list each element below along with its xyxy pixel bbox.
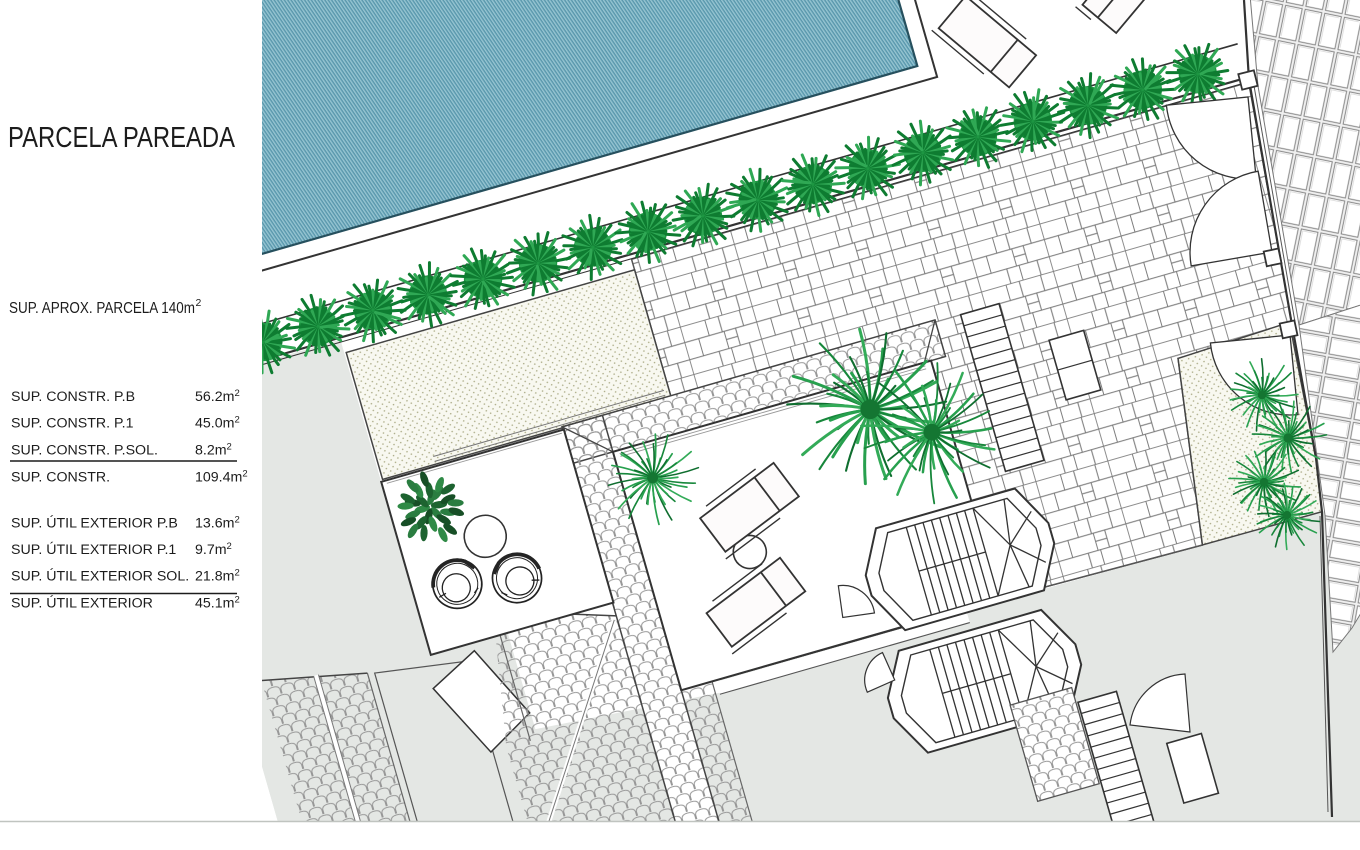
svg-text:SUP. ÚTIL EXTERIOR P.1: SUP. ÚTIL EXTERIOR P.1 (11, 541, 176, 558)
svg-text:2: 2 (196, 297, 202, 309)
svg-text:109.4m2: 109.4m2 (195, 469, 248, 486)
svg-text:SUP. CONSTR. P.1: SUP. CONSTR. P.1 (11, 416, 134, 432)
svg-text:SUP. CONSTR. P.SOL.: SUP. CONSTR. P.SOL. (11, 443, 158, 459)
svg-text:13.6m2: 13.6m2 (195, 515, 240, 532)
svg-text:SUP. ÚTIL EXTERIOR P.B: SUP. ÚTIL EXTERIOR P.B (11, 515, 178, 532)
svg-text:9.7m2: 9.7m2 (195, 541, 232, 558)
svg-text:SUP. ÚTIL EXTERIOR SOL.: SUP. ÚTIL EXTERIOR SOL. (11, 568, 189, 585)
svg-text:45.1m2: 45.1m2 (195, 595, 240, 612)
svg-text:SUP. CONSTR. P.B: SUP. CONSTR. P.B (11, 389, 135, 405)
svg-text:SUP. ÚTIL EXTERIOR: SUP. ÚTIL EXTERIOR (11, 595, 153, 612)
svg-text:8.2m2: 8.2m2 (195, 442, 232, 459)
svg-text:45.0m2: 45.0m2 (195, 415, 240, 432)
svg-text:21.8m2: 21.8m2 (195, 568, 240, 585)
svg-text:SUP. APROX. PARCELA 140m: SUP. APROX. PARCELA 140m (9, 300, 195, 317)
svg-text:PARCELA PAREADA: PARCELA PAREADA (8, 122, 236, 154)
svg-text:SUP. CONSTR.: SUP. CONSTR. (11, 470, 110, 486)
svg-text:56.2m2: 56.2m2 (195, 388, 240, 405)
